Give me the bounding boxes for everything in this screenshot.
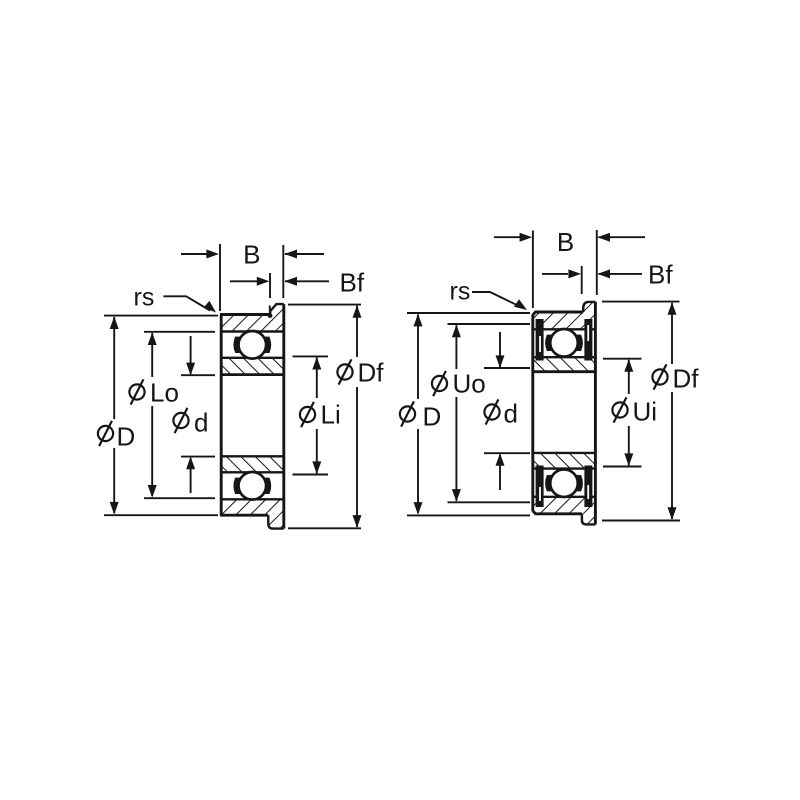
- svg-text:d: d: [504, 399, 518, 429]
- svg-text:Uo: Uo: [453, 369, 486, 399]
- svg-text:Ui: Ui: [633, 397, 658, 427]
- svg-text:Li: Li: [321, 400, 341, 430]
- svg-text:Lo: Lo: [150, 378, 179, 408]
- svg-text:d: d: [194, 408, 208, 438]
- svg-text:D: D: [423, 402, 442, 432]
- svg-text:Bf: Bf: [648, 260, 673, 290]
- svg-text:Df: Df: [358, 358, 385, 388]
- svg-text:Bf: Bf: [340, 268, 365, 298]
- svg-text:D: D: [117, 422, 136, 452]
- svg-text:Df: Df: [673, 364, 700, 394]
- svg-text:B: B: [243, 240, 260, 270]
- svg-text:rs: rs: [450, 278, 471, 306]
- svg-text:rs: rs: [134, 284, 155, 312]
- svg-text:B: B: [557, 227, 574, 257]
